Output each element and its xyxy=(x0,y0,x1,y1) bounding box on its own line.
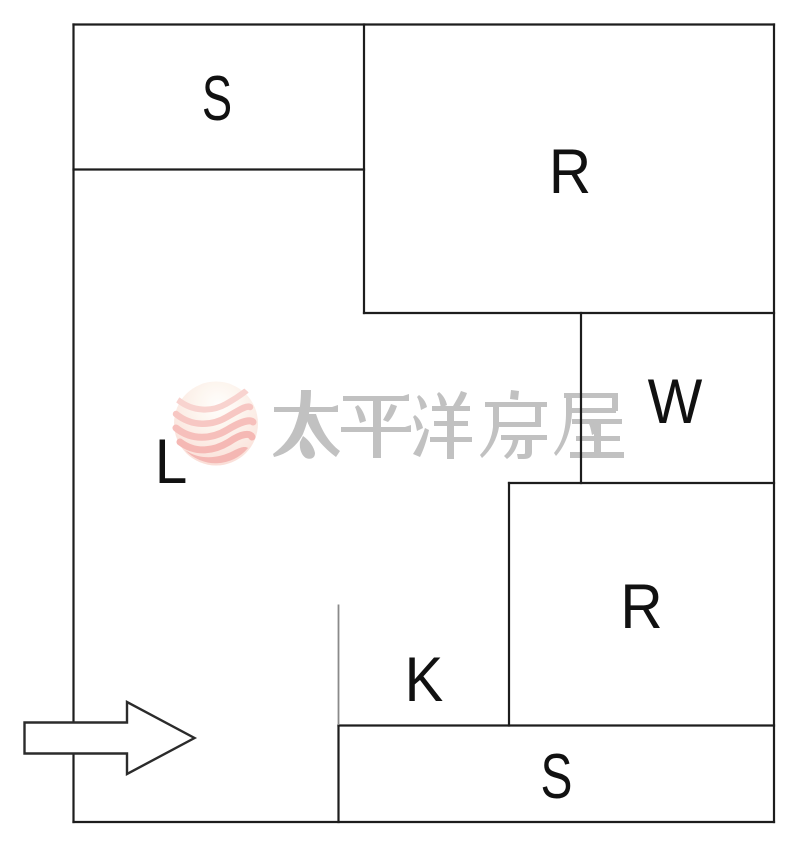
svg-text:R: R xyxy=(549,136,591,206)
svg-text:S: S xyxy=(541,741,573,812)
svg-text:K: K xyxy=(405,644,444,715)
svg-text:S: S xyxy=(202,63,232,134)
svg-text:R: R xyxy=(620,571,662,641)
svg-text:W: W xyxy=(648,366,703,437)
svg-text:L: L xyxy=(155,426,188,496)
